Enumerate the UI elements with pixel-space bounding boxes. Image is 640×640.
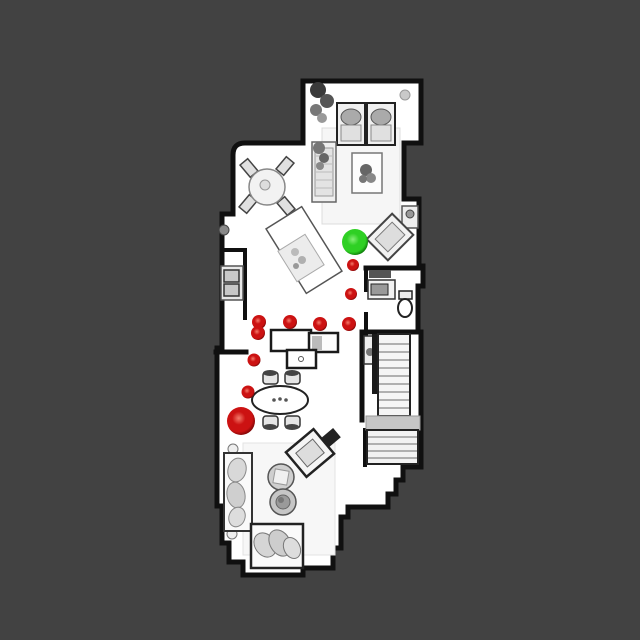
furniture-ottoman-upper bbox=[268, 464, 294, 490]
furniture-stair-landing bbox=[366, 416, 420, 430]
furniture-stairs-lower bbox=[367, 430, 418, 464]
viewport bbox=[0, 0, 640, 640]
furniture-bookshelf bbox=[312, 142, 336, 202]
small-red-sphere-marker-2 bbox=[345, 288, 357, 300]
furniture-ottoman-lower bbox=[270, 489, 296, 515]
large-green-sphere-marker bbox=[342, 229, 368, 255]
large-red-sphere-marker bbox=[227, 407, 255, 435]
furniture-wall-dot-top-right bbox=[400, 90, 410, 100]
furniture-wall-plant-left bbox=[219, 225, 229, 235]
furniture-kitchen-sink-left bbox=[221, 266, 243, 300]
small-red-sphere-marker-4 bbox=[283, 315, 297, 329]
small-red-sphere-marker-6 bbox=[342, 317, 356, 331]
furniture-couch-left bbox=[224, 444, 252, 539]
small-red-sphere-marker-1 bbox=[347, 259, 359, 271]
small-red-sphere-marker-9 bbox=[242, 386, 255, 399]
small-red-sphere-marker-8 bbox=[248, 354, 261, 367]
furniture-armchair-pair-top bbox=[337, 103, 395, 145]
furniture-toilet bbox=[398, 291, 412, 317]
small-red-sphere-marker-5 bbox=[313, 317, 327, 331]
small-red-sphere-marker-7 bbox=[251, 326, 265, 340]
furniture-coffee-table-top-room bbox=[352, 153, 382, 193]
furniture-couch-bottom bbox=[249, 524, 304, 568]
furniture-bathroom-vanity bbox=[368, 270, 395, 299]
floorplan-render bbox=[0, 0, 640, 640]
